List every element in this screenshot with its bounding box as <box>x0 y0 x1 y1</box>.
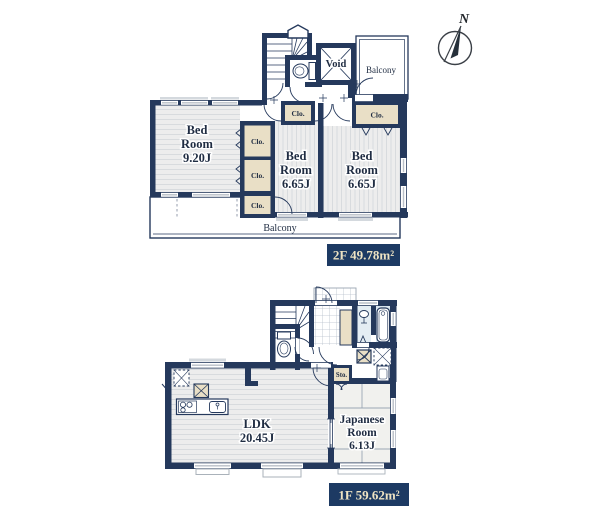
floor-2f-plan: Bed Room 9.20J Bed Room 6.65J Bed Room 6… <box>150 25 408 266</box>
refrigerator-space <box>174 370 189 386</box>
toilet-icon <box>293 63 316 80</box>
bedroom-center-label-line3: 6.65J <box>282 177 310 191</box>
washer-pan-dashed <box>374 348 391 365</box>
balcony-bottom-label: Balcony <box>263 223 296 234</box>
terrace-step <box>196 469 229 475</box>
floor-1f-area-text: 1F 59.62m² <box>338 488 399 503</box>
washer-box <box>357 350 371 363</box>
closet-bottom-label: Clo. <box>251 201 264 210</box>
bedroom-main-label-line2: Room <box>181 137 214 151</box>
floor-2f-area-text: 2F 49.78m² <box>333 248 394 263</box>
bedroom-main-label-line1: Bed <box>187 123 208 137</box>
japanese-room-label-line3: 6.13J <box>349 440 375 452</box>
toilet-icon <box>278 332 291 357</box>
bedroom-right-label-line2: Room <box>346 163 379 177</box>
compass-north-label: N <box>458 12 470 27</box>
japanese-room-label-line2: Room <box>347 427 377 439</box>
bedroom-center-label-line2: Room <box>280 163 313 177</box>
ldk-label-line2: 20.45J <box>240 431 274 445</box>
storage-label: Sto. <box>336 372 347 379</box>
entrance-tiles <box>314 306 340 345</box>
bedroom-right-label-line3: 6.65J <box>348 177 376 191</box>
cupboard-box <box>194 384 209 398</box>
void-label: Void <box>326 59 347 70</box>
bathtub-icon <box>377 308 390 342</box>
closet-right-label: Clo. <box>370 111 383 120</box>
bedroom-center-label-line1: Bed <box>286 149 307 163</box>
bedroom-main-label-line3: 9.20J <box>183 151 211 165</box>
sink-icon <box>210 402 226 413</box>
floor-1f-plan: LDK 20.45J Japanese Room 6.13J Sto. 1F 5… <box>162 287 409 506</box>
ldk-label-line1: LDK <box>243 417 270 431</box>
floor-2f-badge: 2F 49.78m² <box>327 244 400 266</box>
gable-mark <box>288 25 308 38</box>
vanity-unit <box>377 366 389 381</box>
genkan-step <box>340 310 352 345</box>
closet-upper-label: Clo. <box>251 137 264 146</box>
kitchen-counter <box>177 399 229 415</box>
window-sill <box>338 469 385 474</box>
floor-plan-page: N <box>0 0 600 513</box>
bedroom-right-label-line1: Bed <box>352 149 373 163</box>
balcony-top-label: Balcony <box>366 65 396 75</box>
closet-lower-label: Clo. <box>251 171 264 180</box>
floor-1f-badge: 1F 59.62m² <box>329 483 409 506</box>
closet-hall-label: Clo. <box>291 109 304 118</box>
compass-icon: N <box>439 12 472 65</box>
japanese-room-label-line1: Japanese <box>340 414 385 426</box>
floor-plan-canvas: N <box>0 0 600 513</box>
terrace-step <box>263 469 301 477</box>
